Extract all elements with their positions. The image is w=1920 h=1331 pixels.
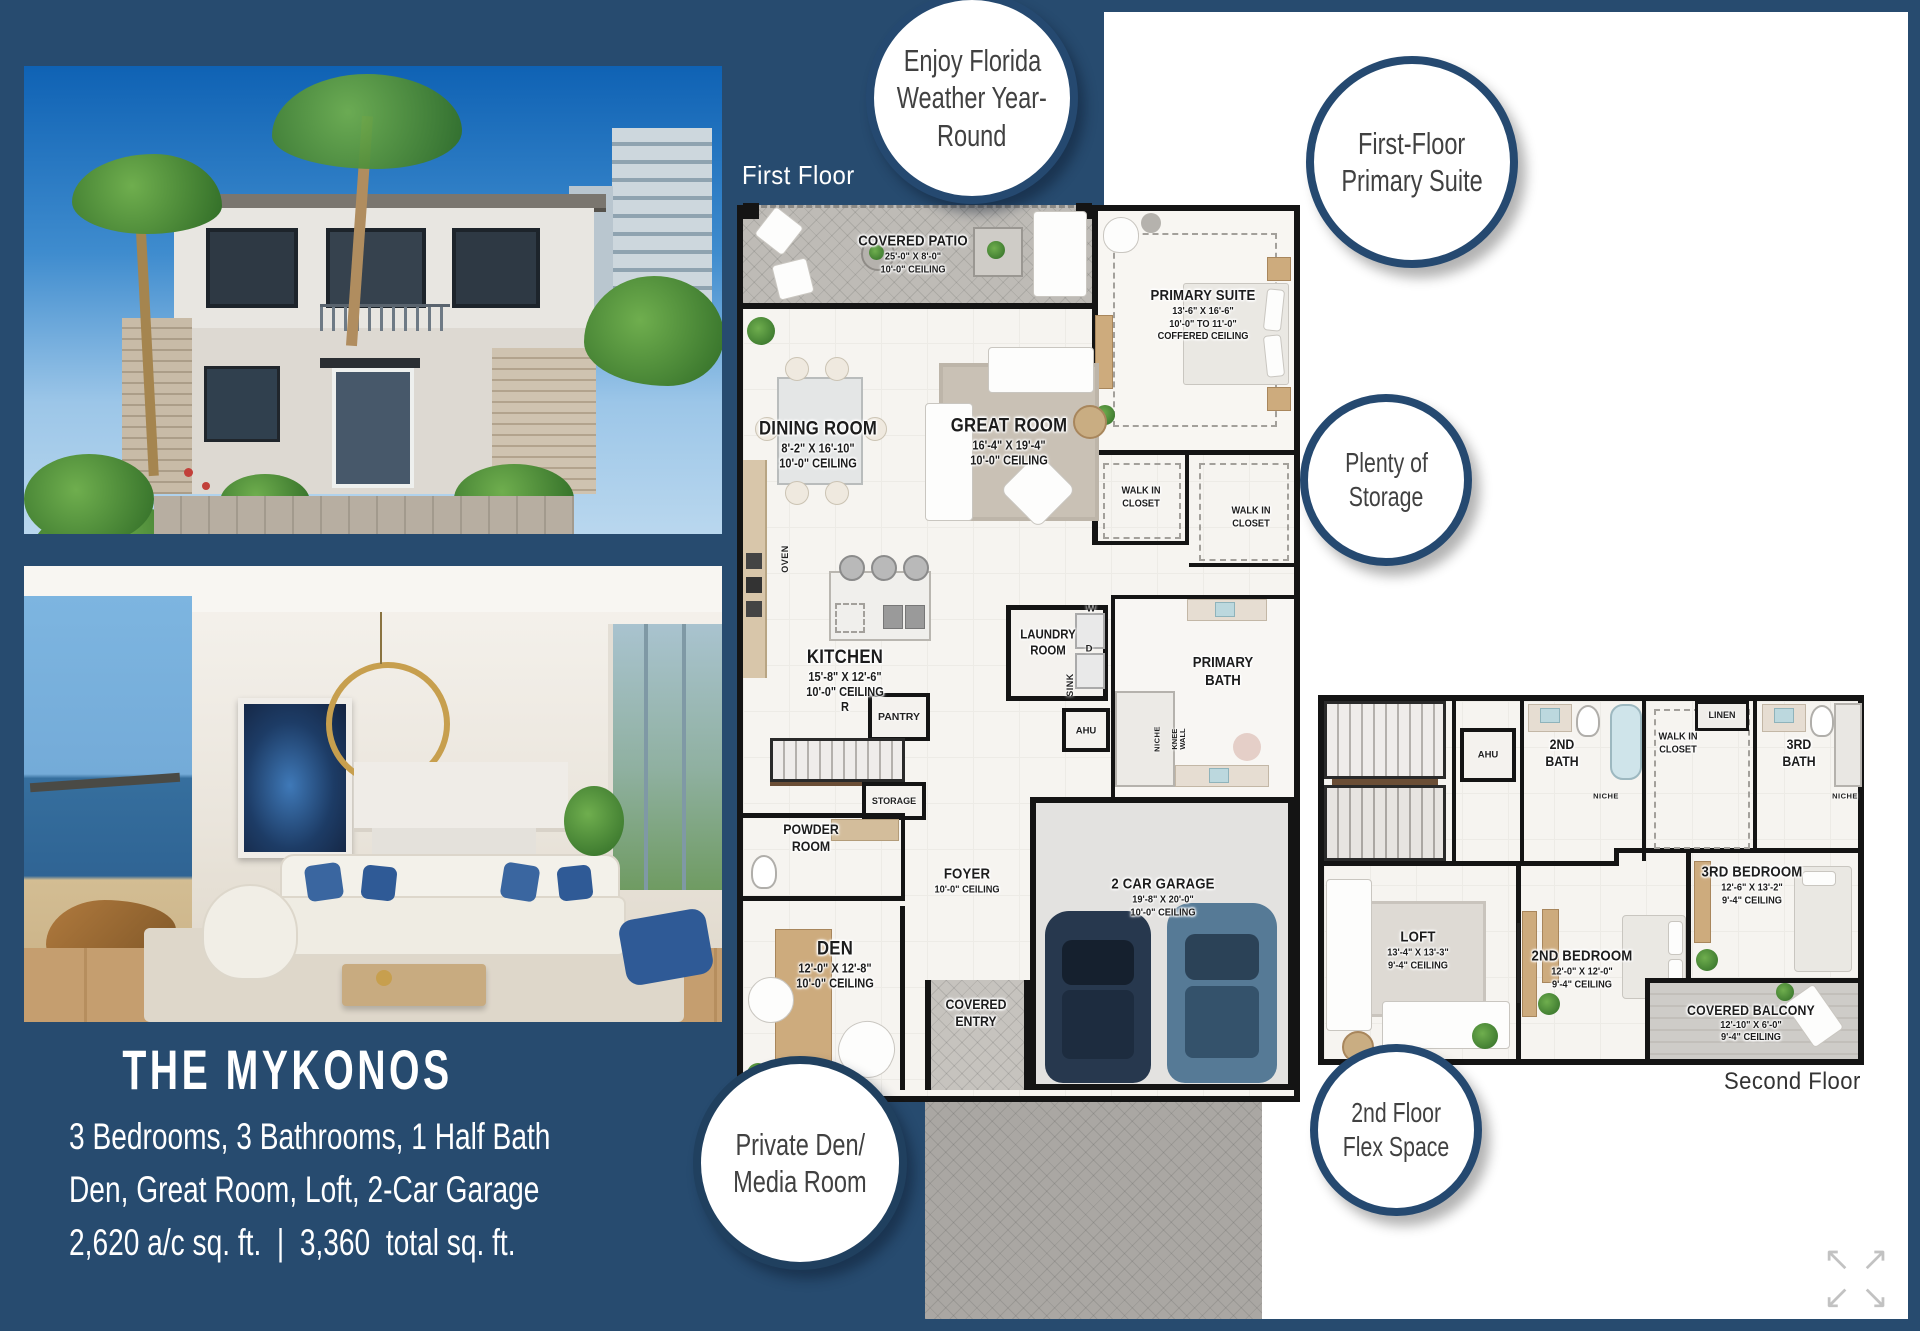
gold-decor: [376, 970, 392, 986]
balcony-rail: [320, 304, 450, 331]
staircase: [770, 738, 905, 782]
primary-bath-label: PRIMARY BATH: [1193, 654, 1253, 690]
chandelier-cable: [380, 612, 382, 664]
foyer-label: FOYER 10'-0" CEILING: [934, 866, 999, 897]
upper-window-3: [452, 228, 540, 308]
sink-tag: SINK: [1065, 673, 1075, 697]
niche-tag-bath3: NICHE: [1832, 792, 1858, 801]
ahu-tag: AHU: [1076, 726, 1097, 737]
blue-pillow-2: [360, 864, 397, 901]
room-name: 2ND BEDROOM: [1532, 947, 1633, 965]
nightstand: [1267, 257, 1291, 281]
wall-bath-row: [1324, 861, 1619, 866]
houseplant: [564, 786, 624, 856]
bed3-label: 3RD BEDROOM 12'-6" X 13'-2" 9'-4" CEILIN…: [1702, 863, 1803, 906]
suite-chair: [1103, 217, 1139, 253]
room-name-2: CLOSET: [1231, 517, 1270, 530]
room-name: COVERED PATIO: [858, 232, 968, 250]
niche-tag-bath2: NICHE: [1593, 792, 1619, 801]
flower-red-1: [184, 468, 193, 477]
car-roof: [1185, 986, 1260, 1058]
room-ceiling: 9'-4" CEILING: [1532, 978, 1633, 991]
room-name: GREAT ROOM: [951, 416, 1068, 439]
car-dark: [1045, 911, 1151, 1083]
primary-suite-label: PRIMARY SUITE 13'-6" X 16'-6" 10'-0" TO …: [1151, 287, 1256, 343]
walk-in-closet-2-label: WALK IN CLOSET: [1231, 504, 1270, 529]
ahu-tag-second: AHU: [1478, 750, 1499, 761]
callout-primary-suite: First-Floor Primary Suite: [1306, 56, 1518, 268]
room-name: DEN: [796, 939, 874, 962]
room-name-2: BATH: [1193, 672, 1253, 690]
expand-arrow-bl: ↙: [1818, 1278, 1856, 1316]
room-ceiling: 9'-4" CEILING: [1387, 959, 1448, 972]
room-name: LAUNDRY: [1020, 626, 1076, 642]
bar-stool-2: [871, 555, 897, 581]
room-ceiling-2: COFFERED CEILING: [1151, 330, 1256, 343]
room-name: POWDER: [783, 821, 838, 838]
sofa-seat: [274, 896, 626, 956]
second-floor-heading: Second Floor: [1724, 1068, 1861, 1096]
niche-tag: NICHE: [1153, 726, 1162, 752]
room-dims: 12'-0" X 12'-8": [796, 961, 874, 976]
room-ceiling: 10'-0" CEILING: [934, 884, 999, 897]
staircase-second-lower: [1324, 785, 1446, 861]
walk-in-closet-1-label: WALK IN CLOSET: [1121, 484, 1160, 509]
dryer: [1075, 653, 1105, 689]
upper-window-1: [206, 228, 298, 308]
driveway: [925, 1102, 1262, 1319]
expand-arrow-br: ↘: [1856, 1278, 1894, 1316]
room-ceiling: 10'-0" TO 11'-0": [1151, 318, 1256, 331]
patio-corner-block: [743, 203, 759, 219]
spec-line-1: 3 Bedrooms, 3 Bathrooms, 1 Half Bath: [69, 1110, 506, 1163]
callout-line: Flex Space: [1343, 1130, 1449, 1164]
first-floor-plan: COVERED PATIO 25'-0" X 8'-0" 10'-0" CEIL…: [737, 205, 1300, 1102]
balcony-label: COVERED BALCONY 12'-10" X 6'-0" 9'-4" CE…: [1687, 1002, 1815, 1044]
loft-plant: [1472, 1023, 1498, 1049]
car-steel-blue: [1167, 903, 1277, 1083]
car-windshield: [1062, 940, 1134, 985]
room-name-2: ENTRY: [946, 1013, 1007, 1030]
patio-fire-plant: [987, 241, 1005, 259]
callout-line: Storage: [1349, 480, 1424, 514]
covered-patio-label: COVERED PATIO 25'-0" X 8'-0" 10'-0" CEIL…: [858, 232, 968, 275]
bath2-sink: [1540, 708, 1560, 723]
spec-line-2: Den, Great Room, Loft, 2-Car Garage: [69, 1163, 506, 1216]
room-name: 2 CAR GARAGE: [1111, 875, 1214, 893]
room-name: WALK IN: [1121, 484, 1160, 497]
palm-fronds-3: [72, 154, 222, 234]
armchair: [202, 884, 298, 980]
interior-photo: [24, 566, 722, 1022]
callout-flex: 2nd Floor Flex Space: [1310, 1044, 1482, 1216]
bed3-plant: [1696, 949, 1718, 971]
room-dims: 13'-4" X 13'-3": [1387, 946, 1448, 959]
callout-line: Round: [937, 117, 1006, 154]
staircase-second: [1324, 701, 1446, 779]
callout-line: Private Den/: [735, 1126, 865, 1163]
shrub-1: [24, 454, 154, 534]
garage-label: 2 CAR GARAGE 19'-8" X 20'-0" 10'-0" CEIL…: [1111, 875, 1214, 918]
laundry-room-label: LAUNDRY ROOM: [1020, 626, 1076, 657]
powder-room-label: POWDER ROOM: [783, 821, 838, 855]
room-name: PRIMARY: [1193, 654, 1253, 672]
kitchen-counter: [743, 460, 767, 678]
callout-weather: Enjoy Florida Weather Year- Round: [866, 0, 1078, 204]
callout-line: Plenty of: [1345, 446, 1428, 480]
room-name: WALK IN: [1658, 730, 1697, 743]
room-dims: 12'-10" X 6'-0": [1687, 1019, 1815, 1032]
room-dims: 13'-6" X 16'-6": [1151, 305, 1256, 318]
great-room-label: GREAT ROOM 16'-4" X 19'-4" 10'-0" CEILIN…: [951, 416, 1068, 469]
bed2-pillow: [1668, 921, 1683, 955]
round-side-table: [1073, 405, 1107, 439]
blue-pillow-4: [556, 864, 593, 901]
bath-sink-2: [1209, 768, 1229, 783]
bath-sink: [1215, 602, 1235, 617]
flower-red-2: [202, 482, 210, 490]
room-dims: 12'-6" X 13'-2": [1702, 881, 1803, 894]
lower-window: [204, 366, 280, 442]
first-floor-heading: First Floor: [742, 160, 855, 191]
callout-line: 2nd Floor: [1351, 1096, 1441, 1130]
callout-line: Enjoy Florida: [903, 42, 1041, 79]
expand-arrow-tr: ↗: [1856, 1240, 1894, 1278]
wall-bed2-bed3: [1686, 848, 1691, 978]
callout-line: Weather Year-: [897, 79, 1047, 116]
oven-tag: OVEN: [780, 545, 790, 573]
knee-tag-line2: WALL: [1179, 728, 1187, 749]
suite-side-table: [1141, 213, 1161, 233]
room-ceiling: 9'-4" CEILING: [1687, 1031, 1815, 1044]
palm-fronds: [272, 74, 462, 169]
paver-driveway: [154, 496, 574, 534]
room-name: FOYER: [934, 866, 999, 884]
dining-plant: [747, 317, 775, 345]
room-ceiling: 10'-0" CEILING: [806, 685, 884, 700]
dining-chair-2: [825, 357, 849, 381]
room-name: WALK IN: [1231, 504, 1270, 517]
room-name: COVERED BALCONY: [1687, 1002, 1815, 1019]
expand-icon[interactable]: ↖ ↗ ↙ ↘: [1818, 1240, 1894, 1316]
fridge-tag: R: [806, 700, 884, 715]
bed3-pillow: [1802, 871, 1836, 886]
room-name-2: BATH: [1782, 753, 1815, 770]
entry-awning: [320, 358, 420, 368]
oven-appliance: [746, 577, 762, 593]
linen-label: LINEN: [1709, 710, 1736, 720]
great-room-sofa: [988, 347, 1094, 393]
wic-label-second: WALK IN CLOSET: [1658, 730, 1697, 755]
room-name: KITCHEN: [806, 647, 884, 670]
bath-rug: [1233, 733, 1261, 761]
kitchen-label: KITCHEN 15'-8" X 12'-6" 10'-0" CEILING R: [806, 647, 884, 715]
dining-chair-1: [785, 357, 809, 381]
room-name: COVERED: [946, 996, 1007, 1013]
bed2-label: 2ND BEDROOM 12'-0" X 12'-0" 9'-4" CEILIN…: [1532, 947, 1633, 990]
washer-tag: W: [1087, 604, 1096, 615]
room-name: 2ND: [1545, 736, 1578, 753]
callout-storage: Plenty of Storage: [1300, 394, 1472, 566]
room-dims: 16'-4" X 19'-4": [951, 438, 1068, 453]
dining-chair-3: [785, 481, 809, 505]
toilet: [751, 855, 777, 889]
blue-pillow-1: [304, 862, 345, 903]
balcony-plant: [1776, 983, 1794, 1001]
wall-bath2-wic: [1642, 701, 1646, 861]
room-ceiling: 10'-0" CEILING: [858, 263, 968, 276]
kitchen-cabinets: [354, 762, 568, 832]
wall-jog: [1614, 848, 1619, 866]
room-name: PRIMARY SUITE: [1151, 287, 1256, 305]
oven-appliance-2: [746, 601, 762, 617]
car-roof: [1062, 990, 1134, 1059]
dining-room-label: DINING ROOM 8'-2" X 16'-10" 10'-0" CEILI…: [759, 419, 877, 472]
car-windshield: [1185, 934, 1260, 981]
room-name-2: CLOSET: [1658, 743, 1697, 756]
island-sink-2: [905, 605, 925, 629]
covered-entry-label: COVERED ENTRY: [946, 996, 1007, 1030]
pantry-label: PANTRY: [878, 711, 920, 723]
den-label: DEN 12'-0" X 12'-8" 10'-0" CEILING: [796, 939, 874, 992]
window-mullion: [644, 624, 648, 890]
dryer-tag: D: [1086, 644, 1093, 655]
island-sink: [883, 605, 903, 629]
room-ceiling: 10'-0" CEILING: [951, 453, 1068, 468]
upper-window-2: [326, 228, 426, 308]
bed2-plant: [1538, 993, 1560, 1015]
powder-vanity: [831, 819, 899, 841]
blue-pillow-3: [499, 861, 540, 902]
flyer-page: THE MYKONOS 3 Bedrooms, 3 Bathrooms, 1 H…: [0, 0, 1920, 1331]
room-name-2: ROOM: [1020, 642, 1076, 658]
callout-line: First-Floor: [1358, 125, 1465, 162]
bath2-toilet: [1576, 705, 1600, 737]
room-ceiling: 10'-0" CEILING: [796, 976, 874, 991]
cooktop: [746, 553, 762, 569]
nightstand-2: [1267, 387, 1291, 411]
dining-chair-4: [825, 481, 849, 505]
wall-wic-bath3: [1753, 701, 1757, 853]
patio-sectional: [1033, 211, 1087, 297]
wall-ahu-bath2: [1520, 701, 1524, 861]
tv: [1517, 923, 1520, 1003]
expand-arrow-tl: ↖: [1818, 1240, 1856, 1278]
spec-line-3: 2,620 a/c sq. ft. | 3,360 total sq. ft.: [69, 1216, 506, 1269]
callout-line: Media Room: [733, 1163, 867, 1200]
bath3-sink: [1774, 708, 1794, 723]
bathtub: [1610, 704, 1642, 780]
room-dims: 15'-8" X 12'-6": [806, 670, 884, 685]
entry-door: [332, 368, 414, 488]
room-dims: 8'-2" X 16'-10": [759, 441, 877, 456]
right-window-wall: [608, 624, 722, 890]
bar-stool-3: [903, 555, 929, 581]
room-name: 3RD: [1782, 736, 1815, 753]
den-chair: [748, 977, 794, 1023]
room-ceiling: 10'-0" CEILING: [1111, 906, 1214, 919]
wall-stairs-ahu: [1452, 701, 1456, 861]
plan-title: THE MYKONOS: [86, 1040, 489, 1100]
room-dims: 25'-0" X 8'-0": [858, 250, 968, 263]
room-name: DINING ROOM: [759, 419, 877, 442]
room-name-2: ROOM: [783, 838, 838, 855]
room-name: 3RD BEDROOM: [1702, 863, 1803, 881]
bar-stool-1: [839, 555, 865, 581]
coffee-table: [342, 964, 486, 1006]
exterior-photo: [24, 66, 722, 534]
second-floor-plan: AHU 2ND BATH NICHE WALK IN CLOSET LINEN …: [1318, 695, 1864, 1065]
room-name-2: CLOSET: [1121, 497, 1160, 510]
room-dims: 19'-8" X 20'-0": [1111, 893, 1214, 906]
island-hatch: [835, 603, 865, 633]
bath3-shower: [1834, 703, 1862, 787]
room-ceiling: 10'-0" CEILING: [759, 456, 877, 471]
storage-label: STORAGE: [872, 796, 916, 806]
knee-wall-tag: KNEE WALL: [1171, 728, 1188, 749]
brand-block: THE MYKONOS 3 Bedrooms, 3 Bathrooms, 1 H…: [0, 1040, 575, 1269]
bath3-label: 3RD BATH: [1782, 736, 1815, 770]
room-dims: 12'-0" X 12'-0": [1532, 965, 1633, 978]
callout-line: Primary Suite: [1341, 162, 1482, 199]
bath2-label: 2ND BATH: [1545, 736, 1578, 770]
room-name: LOFT: [1387, 928, 1448, 946]
bath3-toilet: [1810, 705, 1834, 737]
room-ceiling: 9'-4" CEILING: [1702, 894, 1803, 907]
room-name-2: BATH: [1545, 753, 1578, 770]
loft-sectional: [1326, 879, 1372, 1031]
callout-den: Private Den/ Media Room: [693, 1056, 907, 1270]
loft-label: LOFT 13'-4" X 13'-3" 9'-4" CEILING: [1387, 928, 1448, 971]
window-mullion-2: [682, 624, 686, 890]
shower: [1115, 691, 1175, 787]
